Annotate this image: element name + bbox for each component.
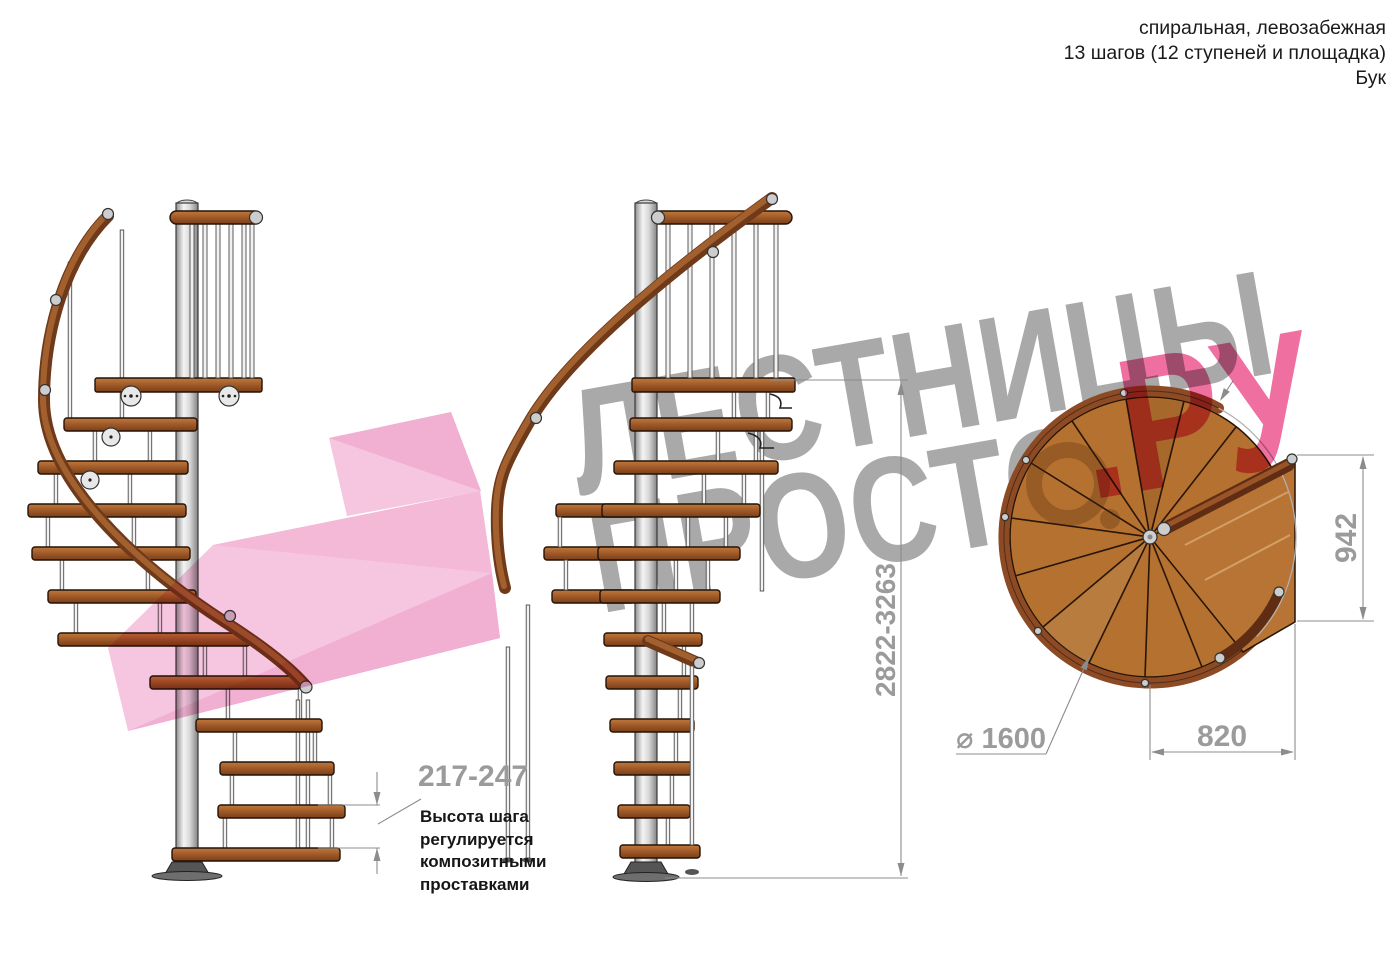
left-top-railing: [170, 211, 263, 378]
middle-pole-base: [613, 862, 699, 882]
step-height-note: Высота шага регулируется композитными пр…: [420, 806, 547, 896]
left-top-platform: [95, 378, 262, 392]
title-type: спиральная, левозабежная: [1064, 16, 1386, 41]
middle-top-railing: [652, 211, 793, 378]
left-elevation-view: [28, 200, 345, 881]
left-center-pole: [176, 203, 198, 866]
left-balusters: [46, 230, 334, 858]
dimension-diameter-value: ⌀ 1600: [949, 721, 1053, 756]
left-mounting-plates: [81, 386, 239, 489]
note-line: Высота шага: [420, 806, 547, 829]
platform-bracket: [770, 394, 792, 408]
pink-arrow-watermark: [108, 412, 500, 731]
middle-pole-cap: [635, 200, 657, 210]
dimension-step-height-lines: [318, 772, 421, 874]
dimension-942-value: 942: [1330, 468, 1364, 608]
dimension-820-value: 820: [1152, 720, 1292, 754]
middle-balusters: [662, 392, 770, 845]
note-line: проставками: [420, 874, 547, 897]
left-pole-base: [152, 862, 222, 881]
middle-lower-handrail: [648, 639, 705, 845]
step-bracket: [748, 433, 774, 448]
title-steps: 13 шагов (12 ступеней и площадка): [1064, 41, 1386, 66]
middle-center-pole: [635, 203, 657, 866]
left-pole-cap: [176, 200, 198, 210]
middle-top-platform: [632, 378, 795, 392]
note-line: регулируется: [420, 829, 547, 852]
plan-lower-arc-handrail: [1215, 587, 1284, 663]
title-material: Бук: [1064, 66, 1386, 91]
dimension-total-height-value: 2822-3263: [869, 560, 903, 700]
middle-left-steps: [502, 504, 634, 863]
watermark-suffix-pink: .РУ: [1066, 319, 1326, 513]
middle-steps: [598, 418, 792, 858]
plan-center-pole: [1143, 530, 1157, 544]
dimension-step-height-value: 217-247: [418, 760, 528, 794]
note-line: композитными: [420, 851, 547, 874]
title-block: спиральная, левозабежная 13 шагов (12 ст…: [1064, 16, 1386, 91]
left-steps: [28, 418, 345, 861]
middle-handrail: [496, 194, 778, 589]
left-handrail: [40, 209, 313, 694]
dimension-total-height-lines: [665, 380, 908, 878]
dimension-820-lines: [1150, 624, 1295, 760]
middle-elevation-view: [496, 194, 795, 882]
technical-drawing-page: ЛЕСТНИЦЫ ПРОСТО .step { fill:url(#wg); s…: [0, 0, 1400, 975]
